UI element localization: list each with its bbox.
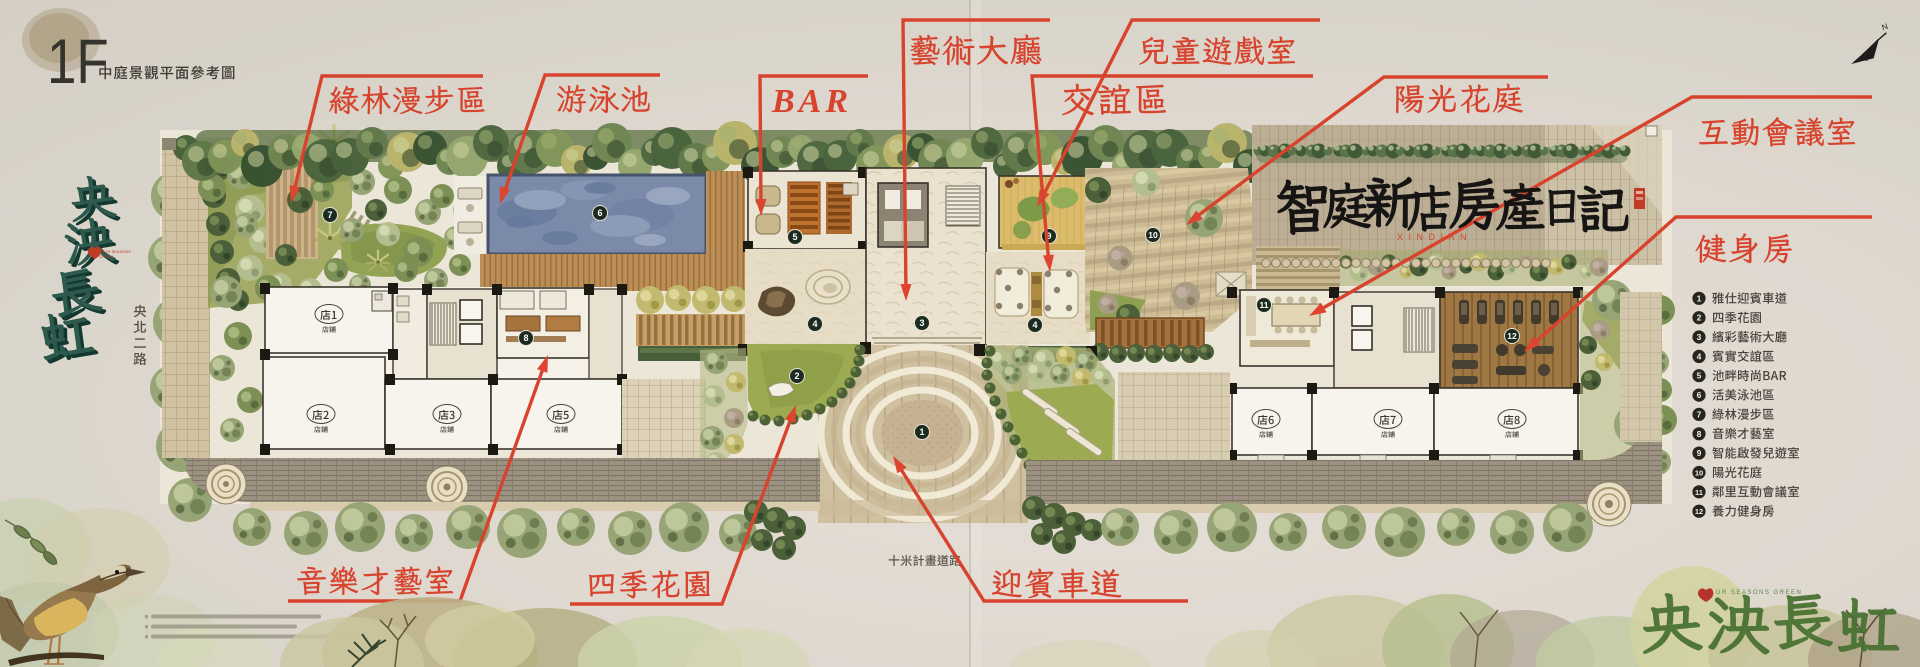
svg-text:UR SEASONS GREEN: UR SEASONS GREEN [1716, 590, 1802, 596]
svg-text:XINDIAN: XINDIAN [1397, 232, 1472, 242]
svg-text:1F: 1F [47, 27, 109, 97]
svg-text:2: 2 [1697, 313, 1702, 323]
svg-text:BAR: BAR [771, 83, 852, 120]
svg-text:8: 8 [1697, 429, 1702, 439]
svg-text:5: 5 [792, 232, 797, 242]
svg-text:3: 3 [919, 318, 924, 328]
svg-text:5: 5 [1697, 371, 1702, 381]
svg-text:4: 4 [812, 319, 817, 329]
svg-text:2: 2 [794, 371, 799, 381]
svg-text:6: 6 [597, 208, 602, 218]
svg-text:12: 12 [1507, 331, 1517, 341]
svg-text:10: 10 [1695, 469, 1703, 478]
svg-text:3: 3 [1697, 332, 1702, 342]
svg-text:11: 11 [1695, 488, 1703, 497]
svg-text:1: 1 [919, 427, 924, 437]
svg-text:10: 10 [1148, 230, 1158, 240]
svg-text:4: 4 [1697, 351, 1702, 361]
svg-text:6: 6 [1697, 390, 1702, 400]
svg-text:9: 9 [1697, 448, 1702, 458]
svg-text:12: 12 [1695, 507, 1703, 516]
svg-text:7: 7 [327, 210, 332, 220]
svg-text:1: 1 [1697, 293, 1702, 303]
svg-text:11: 11 [1260, 300, 1269, 310]
svg-text:8: 8 [523, 333, 528, 343]
svg-text:4: 4 [1032, 320, 1037, 330]
svg-text:GREEN: GREEN [99, 254, 113, 259]
svg-text:7: 7 [1697, 409, 1702, 419]
